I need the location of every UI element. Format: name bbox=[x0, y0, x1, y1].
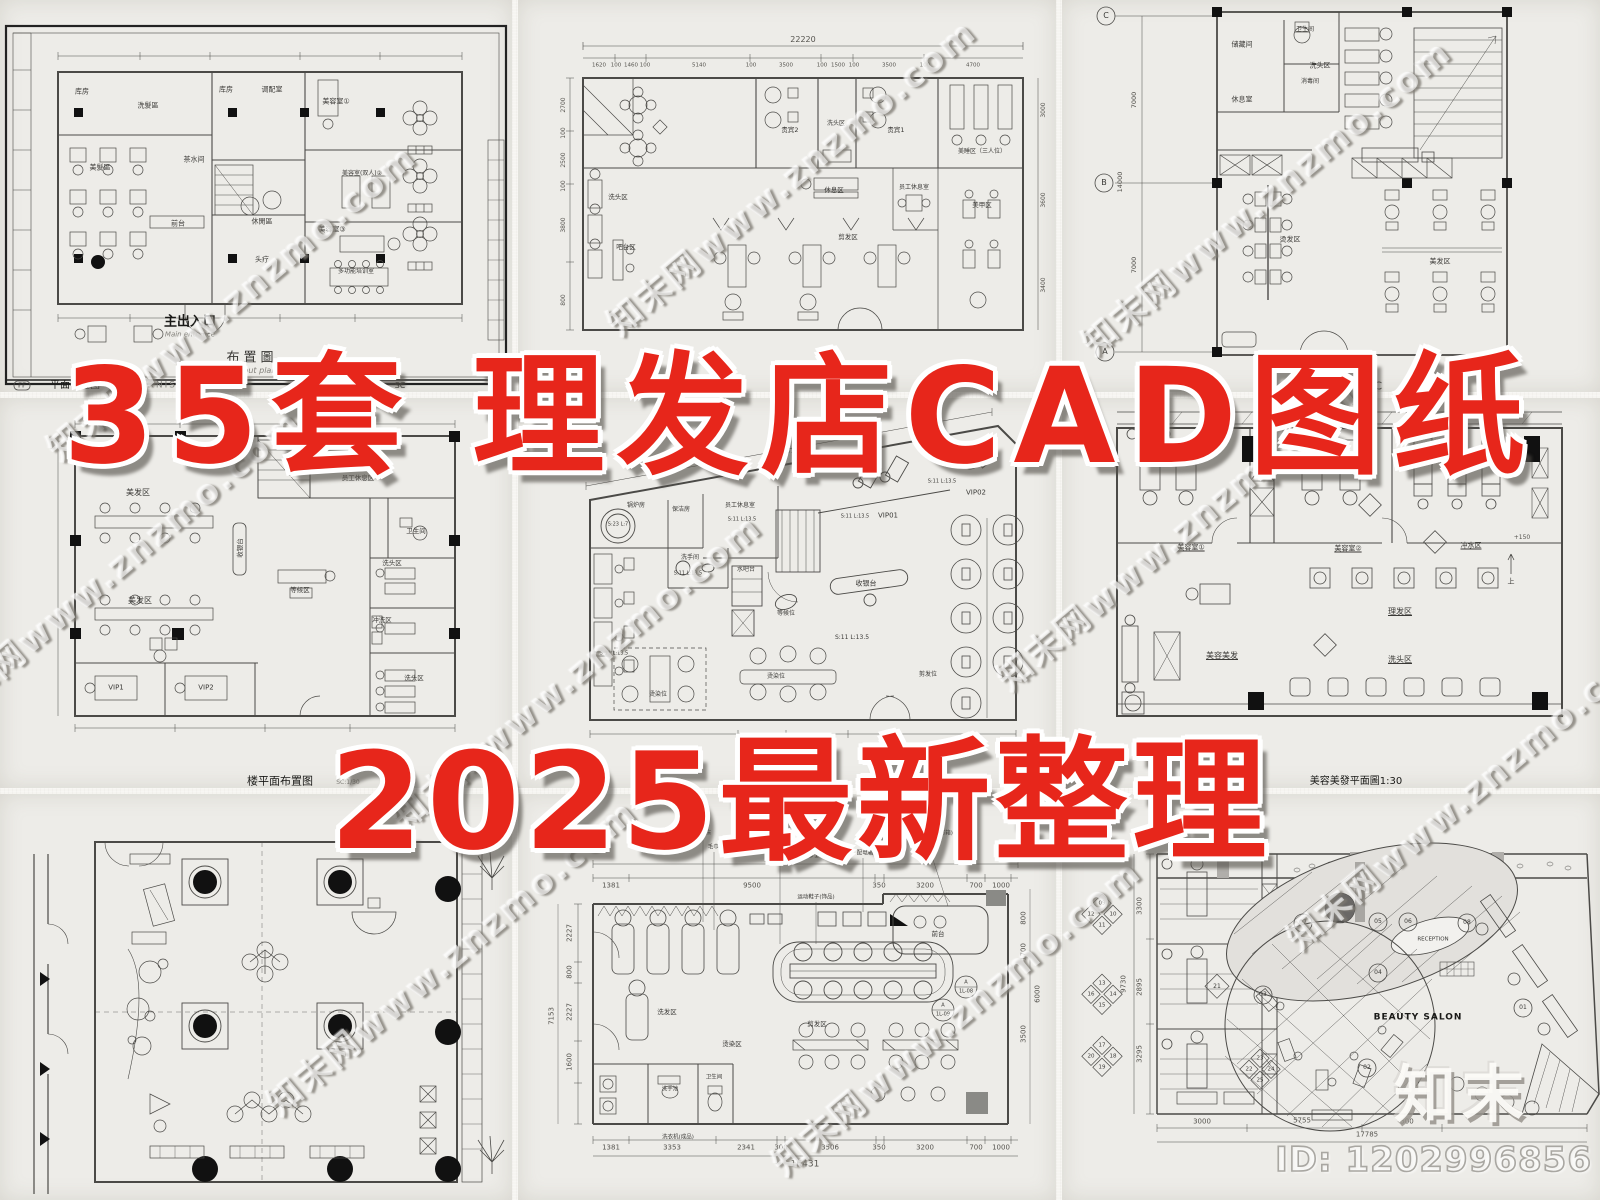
callout-label: 12 bbox=[1088, 912, 1095, 918]
stat-label: S:11 L:13.5 bbox=[728, 518, 756, 523]
callout-label: 1L-08 bbox=[959, 990, 973, 995]
room-label: 冲洗区 bbox=[372, 617, 392, 624]
dim-label: 9730 bbox=[1121, 975, 1128, 993]
dim-label: 6000 bbox=[1035, 985, 1042, 1003]
callout-label: 16 bbox=[1088, 992, 1095, 998]
room-label: 烫染位 bbox=[767, 674, 785, 680]
znzmo-logo: 知末 bbox=[1394, 1044, 1530, 1134]
callout-label: 15 bbox=[1099, 1003, 1106, 1009]
room-label: 美容美发 bbox=[1206, 652, 1238, 660]
room-label: 洗发区 bbox=[657, 1009, 677, 1016]
room-label: 洗髮區 bbox=[138, 103, 159, 110]
dim-label: 700 bbox=[969, 1145, 982, 1152]
callout-label: 23 bbox=[1257, 1056, 1264, 1062]
room-label: 消毒间 bbox=[1301, 79, 1319, 85]
dim-label: 1620 bbox=[592, 63, 606, 69]
callout-label: 1L-09 bbox=[936, 1013, 950, 1018]
room-label: 美发区 bbox=[1430, 259, 1451, 266]
callout-label: 25 bbox=[1257, 1078, 1264, 1084]
dim-label: 2700 bbox=[561, 97, 567, 112]
dim-label: 3800 bbox=[561, 217, 567, 232]
room-label: 美容室(双人)② bbox=[342, 171, 382, 177]
reception-label: RECEPTION bbox=[1417, 937, 1448, 943]
room-label: 卫生间 bbox=[706, 1075, 723, 1081]
room-label: 美睡区（三人位） bbox=[958, 149, 1006, 155]
dim-label: 1500 bbox=[831, 63, 845, 69]
dim-label: 350 bbox=[872, 1145, 885, 1152]
room-label: 员工休息室 bbox=[899, 185, 929, 191]
callout-label: 21 bbox=[1213, 984, 1221, 990]
callout-label: 09 bbox=[1099, 901, 1106, 907]
dim-label: 4700 bbox=[966, 63, 980, 69]
callout-label: 13 bbox=[1099, 981, 1106, 987]
dim-label: 800 bbox=[567, 965, 574, 978]
room-label: 洗头区 bbox=[1310, 63, 1331, 70]
callout-label: 06 bbox=[1404, 919, 1412, 925]
dim-label: 100 bbox=[817, 63, 828, 69]
room-label: 储藏间 bbox=[1232, 42, 1253, 49]
room-label: 美发区 bbox=[128, 597, 152, 605]
room-label: 卫生间 bbox=[1296, 27, 1314, 33]
sheet-caption: 楼平面布置图 bbox=[247, 776, 313, 787]
dim-label: 2500 bbox=[561, 152, 567, 167]
room-label: 库房 bbox=[219, 87, 233, 94]
dim-label: 16431 bbox=[791, 1161, 820, 1170]
note-label: 运动鞋子(饰品) bbox=[797, 895, 834, 901]
dim-label: 800 bbox=[1021, 911, 1028, 924]
room-label: 洗头区 bbox=[382, 560, 402, 567]
dim-label: 100 bbox=[561, 180, 567, 191]
dim-label: 2341 bbox=[737, 1145, 755, 1152]
dim-label: 3353 bbox=[663, 1145, 681, 1152]
room-label: 前台 bbox=[171, 221, 185, 228]
dim-label: 3000 bbox=[1193, 1119, 1211, 1126]
callout-label: 14 bbox=[1110, 992, 1117, 998]
room-label: 卫生间 bbox=[406, 528, 426, 535]
callout-label: 10 bbox=[1110, 912, 1117, 918]
room-label: 水吧台 bbox=[737, 567, 755, 573]
salon-title: BEAUTY SALON bbox=[1374, 1014, 1463, 1023]
up-label: 上 bbox=[1508, 579, 1515, 586]
room-label: 剪发区 bbox=[838, 234, 858, 241]
room-label: 贵宾1 bbox=[887, 127, 904, 134]
dim-label: 100 bbox=[561, 127, 567, 138]
room-label: 剪发区 bbox=[807, 1021, 827, 1028]
room-label: 烫发区 bbox=[1280, 237, 1301, 244]
callout-label: A bbox=[964, 981, 967, 986]
dim-label: 2895 bbox=[1137, 978, 1144, 996]
dim-label: 1700 bbox=[1021, 943, 1028, 961]
room-label: 理发区 bbox=[1388, 608, 1412, 616]
stat-label: S:11 L:13.5 bbox=[841, 515, 869, 520]
room-label: 洗头区 bbox=[1388, 656, 1412, 664]
room-label: 收银台 bbox=[237, 538, 244, 558]
promo-title-line1: 35套 理发店CAD图纸 bbox=[63, 310, 1537, 501]
dim-label: 17785 bbox=[1356, 1132, 1378, 1139]
sheet-tag: FF bbox=[18, 383, 26, 390]
room-label: 员工休息室 bbox=[725, 503, 755, 509]
room-label: 剪发位 bbox=[919, 672, 937, 678]
callout-label: 24 bbox=[1268, 1067, 1275, 1073]
dim-label: 14000 bbox=[1117, 172, 1124, 193]
dim-label: 3200 bbox=[916, 1145, 934, 1152]
axis-bubble: B bbox=[1101, 179, 1107, 187]
dim-label: 3506 bbox=[821, 1145, 839, 1152]
room-label: 美容室② bbox=[1334, 546, 1361, 553]
room-label: 贵宾2 bbox=[781, 127, 798, 134]
dim-label: 2227 bbox=[567, 924, 574, 942]
resource-id: ID: 1202996856 bbox=[1275, 1140, 1592, 1180]
room-label: 库房 bbox=[75, 89, 89, 96]
callout-label: 19 bbox=[1099, 1065, 1106, 1071]
callout-label: 03 bbox=[1259, 992, 1267, 998]
dim-label: 3400 bbox=[1041, 277, 1047, 292]
room-label: 保洁房 bbox=[672, 507, 690, 513]
dim-label: 100 bbox=[640, 63, 651, 69]
room-label: 锅炉房 bbox=[627, 503, 645, 509]
stat-label: S:23 L:7 bbox=[608, 523, 628, 528]
dim-label: 1000 bbox=[992, 1145, 1010, 1152]
callout-label: 07 bbox=[1299, 920, 1307, 926]
room-label: 休息室 bbox=[1232, 97, 1253, 104]
room-label: 休閒區 bbox=[252, 219, 273, 226]
callout-label: 02 bbox=[1363, 1065, 1371, 1071]
dim-label: 7000 bbox=[1131, 257, 1138, 274]
dim-label: 3600 bbox=[1041, 192, 1047, 207]
room-label: 调配室 bbox=[262, 87, 283, 94]
level-label: +150 bbox=[1514, 535, 1530, 541]
dim-label: 22220 bbox=[790, 36, 815, 44]
room-label: 美髮區 bbox=[90, 165, 111, 172]
dim-label: 2227 bbox=[567, 1003, 574, 1021]
room-label: 洗头区 bbox=[608, 194, 628, 201]
room-label: 冲水区 bbox=[1461, 543, 1482, 550]
room-label: 收银台 bbox=[856, 581, 877, 588]
dim-label: 3500 bbox=[1021, 1025, 1028, 1043]
dim-label: 1600 bbox=[567, 1053, 574, 1071]
callout-label: 22 bbox=[1246, 1067, 1253, 1073]
dim-label: 300 bbox=[774, 1145, 787, 1152]
room-label: 等候位 bbox=[777, 611, 795, 617]
dim-label: 100 bbox=[849, 63, 860, 69]
callout-label: 11 bbox=[1099, 923, 1106, 929]
dim-label: 3500 bbox=[779, 63, 793, 69]
dim-label: 1381 bbox=[602, 1145, 620, 1152]
dim-label: 7153 bbox=[549, 1007, 556, 1025]
stat-label: S:11 L:13.5 bbox=[600, 652, 628, 657]
callout-label: 17 bbox=[1099, 1043, 1106, 1049]
room-label: 多功能培训室 bbox=[338, 269, 374, 275]
callout-label: A bbox=[941, 1004, 944, 1009]
room-label: 头疗 bbox=[255, 257, 269, 264]
room-label: VIP2 bbox=[198, 685, 214, 692]
room-label: VIP1 bbox=[108, 685, 124, 692]
sheet-caption: 美容美發平面圖1:30 bbox=[1310, 777, 1402, 787]
dim-label: 5140 bbox=[692, 63, 706, 69]
room-label: 洗手间 bbox=[681, 555, 699, 561]
room-label: 洗头区 bbox=[404, 675, 424, 682]
room-label: 洗手池 bbox=[662, 1087, 679, 1093]
room-label: 茶水间 bbox=[184, 157, 205, 164]
room-label: 洗头区 bbox=[827, 121, 845, 127]
dim-label: 3295 bbox=[1137, 1045, 1144, 1063]
dim-label: 100 bbox=[920, 63, 931, 69]
dim-label: 3500 bbox=[882, 63, 896, 69]
room-label: 休息区 bbox=[824, 187, 844, 194]
callout-label: 18 bbox=[1110, 1054, 1117, 1060]
callout-label: 04 bbox=[1374, 970, 1382, 976]
stat-label: S:11 L:13.5 bbox=[674, 572, 702, 577]
dim-label: 100 bbox=[746, 63, 757, 69]
stat-label: S:11 L:13.5 bbox=[835, 635, 869, 641]
room-label: 吧台区 bbox=[616, 244, 636, 251]
dim-label: 100 bbox=[611, 63, 622, 69]
axis-bubble: C bbox=[1103, 12, 1109, 20]
room-label: 前台 bbox=[932, 931, 945, 938]
promo-title-line2: 2025最新整理 bbox=[330, 693, 1271, 887]
room-label: 美甲区 bbox=[972, 202, 992, 209]
room-label: VIP01 bbox=[878, 513, 898, 520]
dim-label: 800 bbox=[561, 294, 567, 305]
callout-label: 05 bbox=[1374, 919, 1382, 925]
dim-label: 3000 bbox=[1041, 102, 1047, 117]
collage-canvas: 库房 洗髮區 库房 调配室 美容室① 美髮區 茶水间 美容室(双人)② 前台 休… bbox=[0, 0, 1600, 1200]
dim-label: 7000 bbox=[1131, 92, 1138, 109]
dim-label: 5755 bbox=[1293, 1118, 1311, 1125]
room-label: 美容室① bbox=[322, 99, 349, 106]
dim-label: 3300 bbox=[1137, 897, 1144, 915]
room-label: 美容室① bbox=[1177, 545, 1204, 552]
callout-label: 20 bbox=[1088, 1054, 1095, 1060]
room-label: 等候区 bbox=[290, 587, 310, 594]
callout-label: 01 bbox=[1519, 1005, 1527, 1011]
callout-label: 08 bbox=[1463, 920, 1471, 926]
room-label: 美容室③ bbox=[318, 227, 345, 234]
room-label: 烫染区 bbox=[722, 1041, 742, 1048]
dim-label: 1460 bbox=[624, 63, 638, 69]
room-label: 洗衣机(成品) bbox=[662, 1135, 694, 1141]
